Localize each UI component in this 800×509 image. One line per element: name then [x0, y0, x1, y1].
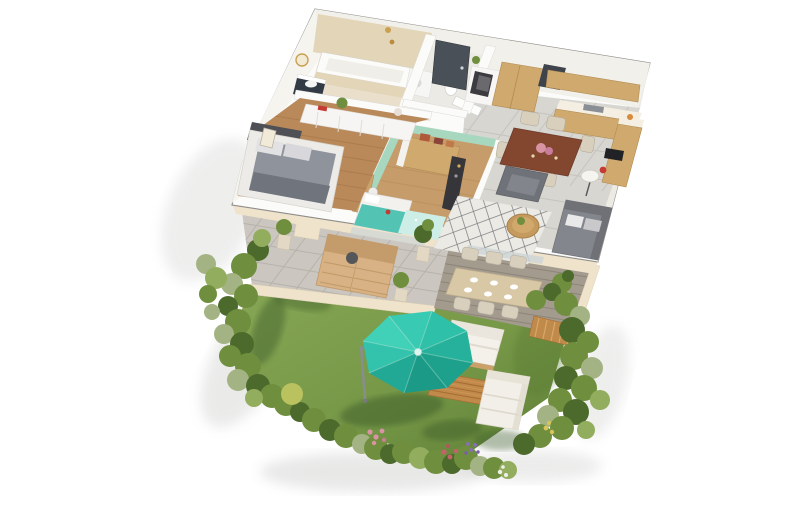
fruit-bowl [627, 114, 633, 120]
table-plant [517, 217, 525, 225]
wall-decor [385, 27, 391, 33]
dining-chair [520, 111, 540, 127]
outdoor-chair [477, 301, 495, 316]
floorplan-svg [0, 0, 800, 509]
side-table [346, 252, 358, 264]
round-mirror [296, 54, 308, 66]
door-handle [460, 66, 463, 69]
yellow-bush [281, 383, 303, 405]
floorplan-render [0, 0, 800, 509]
parasol-hub [415, 349, 422, 356]
plant [337, 98, 348, 109]
coffee-machine [600, 167, 607, 174]
vase [394, 108, 402, 116]
front-door [432, 40, 470, 90]
outdoor-chair [501, 305, 519, 320]
wc-plant [472, 56, 480, 64]
toy [386, 210, 391, 215]
coffee-table [507, 214, 539, 238]
flower-vase [536, 143, 546, 153]
dining-chair [546, 116, 566, 132]
dining-chair [580, 135, 596, 153]
outdoor-chair [509, 255, 527, 270]
outdoor-chair [453, 297, 471, 312]
outdoor-chair [461, 247, 479, 262]
outdoor-chair [485, 251, 503, 266]
